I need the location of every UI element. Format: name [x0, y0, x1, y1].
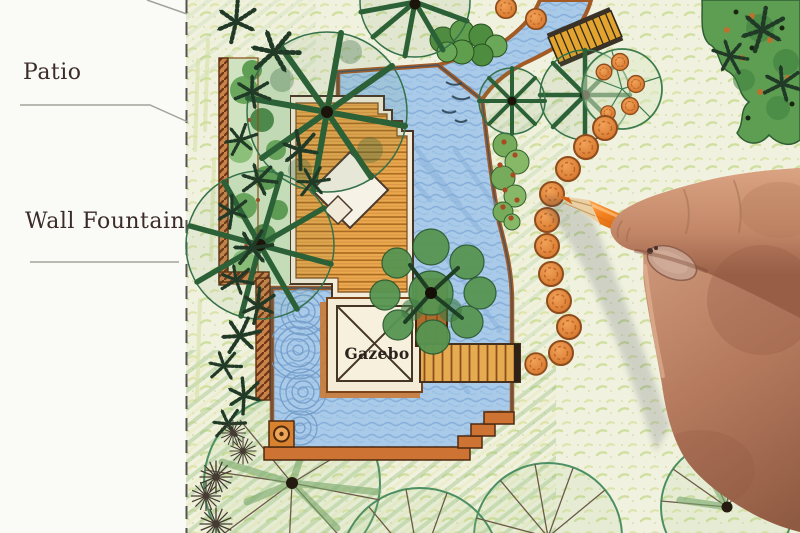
gazebo-label: Gazebo — [341, 344, 413, 363]
wall-fountain-label: Wall Fountain — [25, 209, 185, 234]
plan-illustration — [0, 0, 800, 533]
tree-pond-corner — [479, 68, 545, 134]
fountain-jet-symbol — [269, 421, 294, 447]
landscape-plan-photo: Patio Wall Fountain Gazebo — [0, 0, 800, 533]
patio-label: Patio — [23, 60, 82, 85]
fruit-tree — [582, 49, 662, 129]
